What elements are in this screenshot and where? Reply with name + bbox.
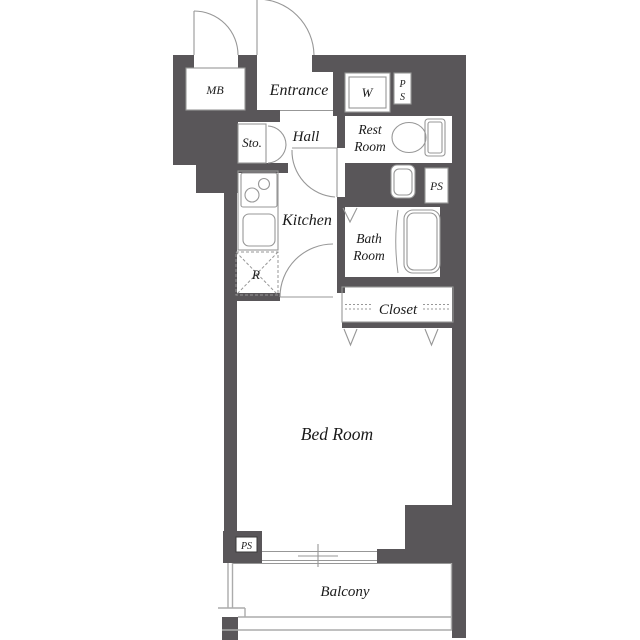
wall-bath-right bbox=[440, 207, 452, 277]
floor-plan-svg: MB Entrance W P S Rest Room Sto. Hall Ki… bbox=[0, 0, 640, 640]
washer-label: W bbox=[362, 85, 374, 100]
stove-burner-large bbox=[245, 188, 259, 202]
ps-top-label-p: P bbox=[398, 79, 405, 90]
hall-label: Hall bbox=[292, 129, 320, 145]
hall-door-arc bbox=[292, 148, 337, 197]
kitchen-door-arc bbox=[280, 244, 333, 297]
rest-room-label-2: Room bbox=[353, 139, 386, 154]
rest-room-label-1: Rest bbox=[357, 122, 382, 137]
entrance-door-opening bbox=[257, 55, 312, 65]
kitchen-label: Kitchen bbox=[281, 212, 332, 229]
wall-bath-bottom bbox=[338, 277, 453, 287]
bath-room-label-2: Room bbox=[352, 248, 385, 263]
toilet-icon bbox=[392, 119, 445, 156]
mb-door-opening bbox=[194, 55, 238, 68]
bath-folding-door-mark bbox=[343, 208, 357, 222]
bath-room-label-1: Bath bbox=[356, 231, 382, 246]
bedroom-label: Bed Room bbox=[301, 424, 373, 444]
bathtub-icon bbox=[396, 210, 440, 273]
kitchen-counter bbox=[238, 171, 278, 250]
wall-bedroom-se-notch bbox=[405, 505, 452, 563]
wall-restroom-west-upper bbox=[337, 116, 345, 148]
wall-kitchen-bottom bbox=[237, 293, 280, 301]
storage-label: Sto. bbox=[242, 135, 262, 150]
wall-left bbox=[224, 193, 237, 540]
wall-top-right bbox=[312, 55, 466, 72]
entrance-door-arc bbox=[257, 0, 314, 55]
fridge-label: R bbox=[251, 267, 260, 282]
balcony-label: Balcony bbox=[320, 584, 369, 600]
floor-plan: MB Entrance W P S Rest Room Sto. Hall Ki… bbox=[0, 0, 640, 640]
kitchen-sink-icon bbox=[243, 214, 275, 246]
closet-door-marks bbox=[344, 329, 438, 345]
ps-bottom-label: PS bbox=[240, 541, 252, 552]
ps-top-label-s: S bbox=[400, 92, 405, 103]
mb-door-arc bbox=[194, 11, 238, 55]
wall-left-chunk1 bbox=[173, 122, 238, 165]
wall-closet-bottom bbox=[342, 322, 453, 328]
wall-balcony-sw-block bbox=[222, 617, 238, 640]
mb-label: MB bbox=[205, 83, 224, 97]
entrance-label: Entrance bbox=[269, 82, 329, 99]
storage-folding-doors bbox=[268, 126, 286, 163]
walls bbox=[173, 55, 466, 640]
wall-mb-band-ext bbox=[257, 110, 280, 122]
wall-right bbox=[452, 72, 466, 638]
closet-label: Closet bbox=[379, 302, 418, 318]
ps-mid-label: PS bbox=[429, 181, 443, 193]
stove-burner-small bbox=[259, 179, 270, 190]
